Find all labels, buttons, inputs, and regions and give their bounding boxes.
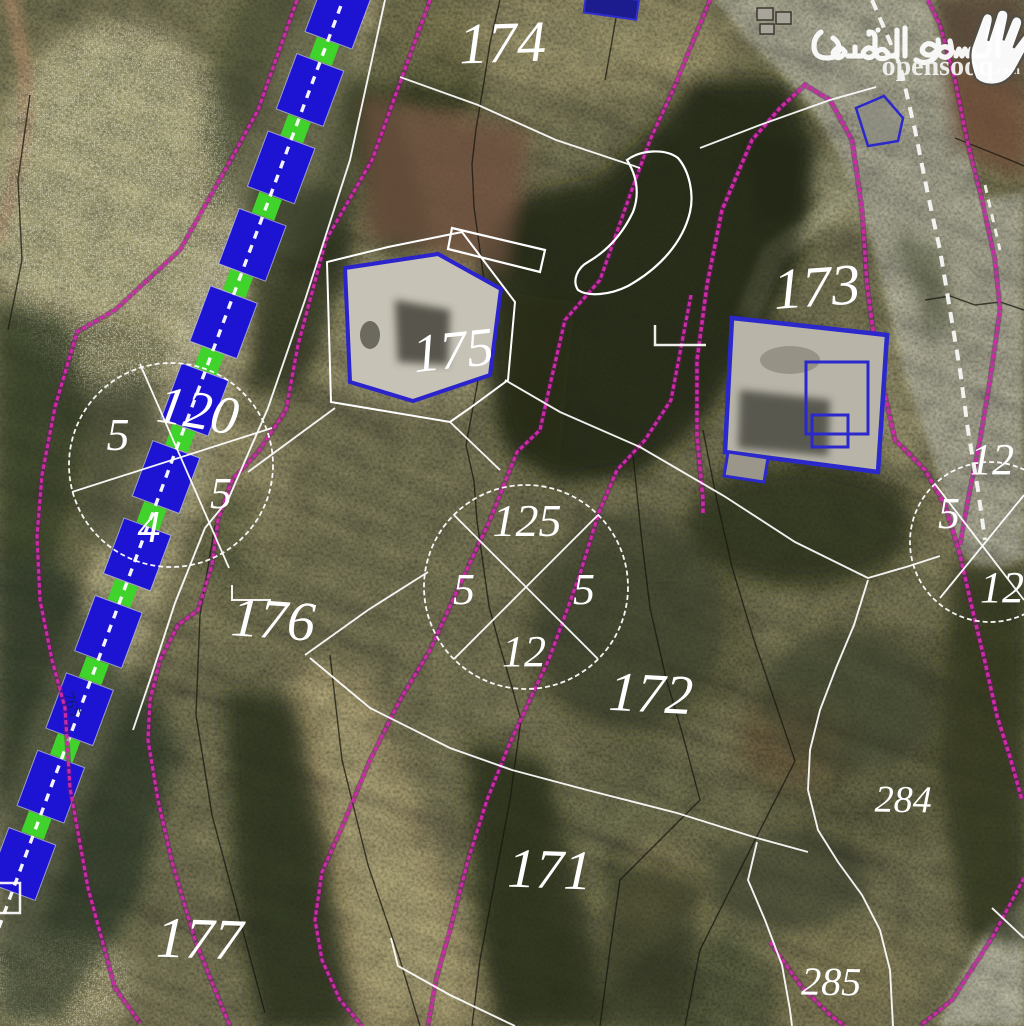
svg-text:5: 5 <box>938 489 960 538</box>
svg-text:174: 174 <box>458 9 547 77</box>
svg-text:5: 5 <box>573 565 595 614</box>
svg-text:12: 12 <box>502 627 546 676</box>
svg-text:5: 5 <box>210 469 232 518</box>
svg-text:125: 125 <box>493 495 562 546</box>
svg-text:5: 5 <box>453 565 475 614</box>
svg-text:285: 285 <box>801 958 862 1004</box>
svg-text:172: 172 <box>607 661 694 727</box>
svg-text:171: 171 <box>507 838 593 903</box>
svg-text:284: 284 <box>874 779 932 822</box>
svg-text:175: 175 <box>410 316 497 384</box>
svg-text:4: 4 <box>138 501 161 552</box>
svg-text:177: 177 <box>155 905 246 973</box>
svg-text:176: 176 <box>229 586 317 654</box>
svg-text:173: 173 <box>771 251 862 322</box>
svg-text:12: 12 <box>970 435 1014 484</box>
svg-text:5: 5 <box>107 409 130 460</box>
svg-text:12: 12 <box>980 563 1024 612</box>
